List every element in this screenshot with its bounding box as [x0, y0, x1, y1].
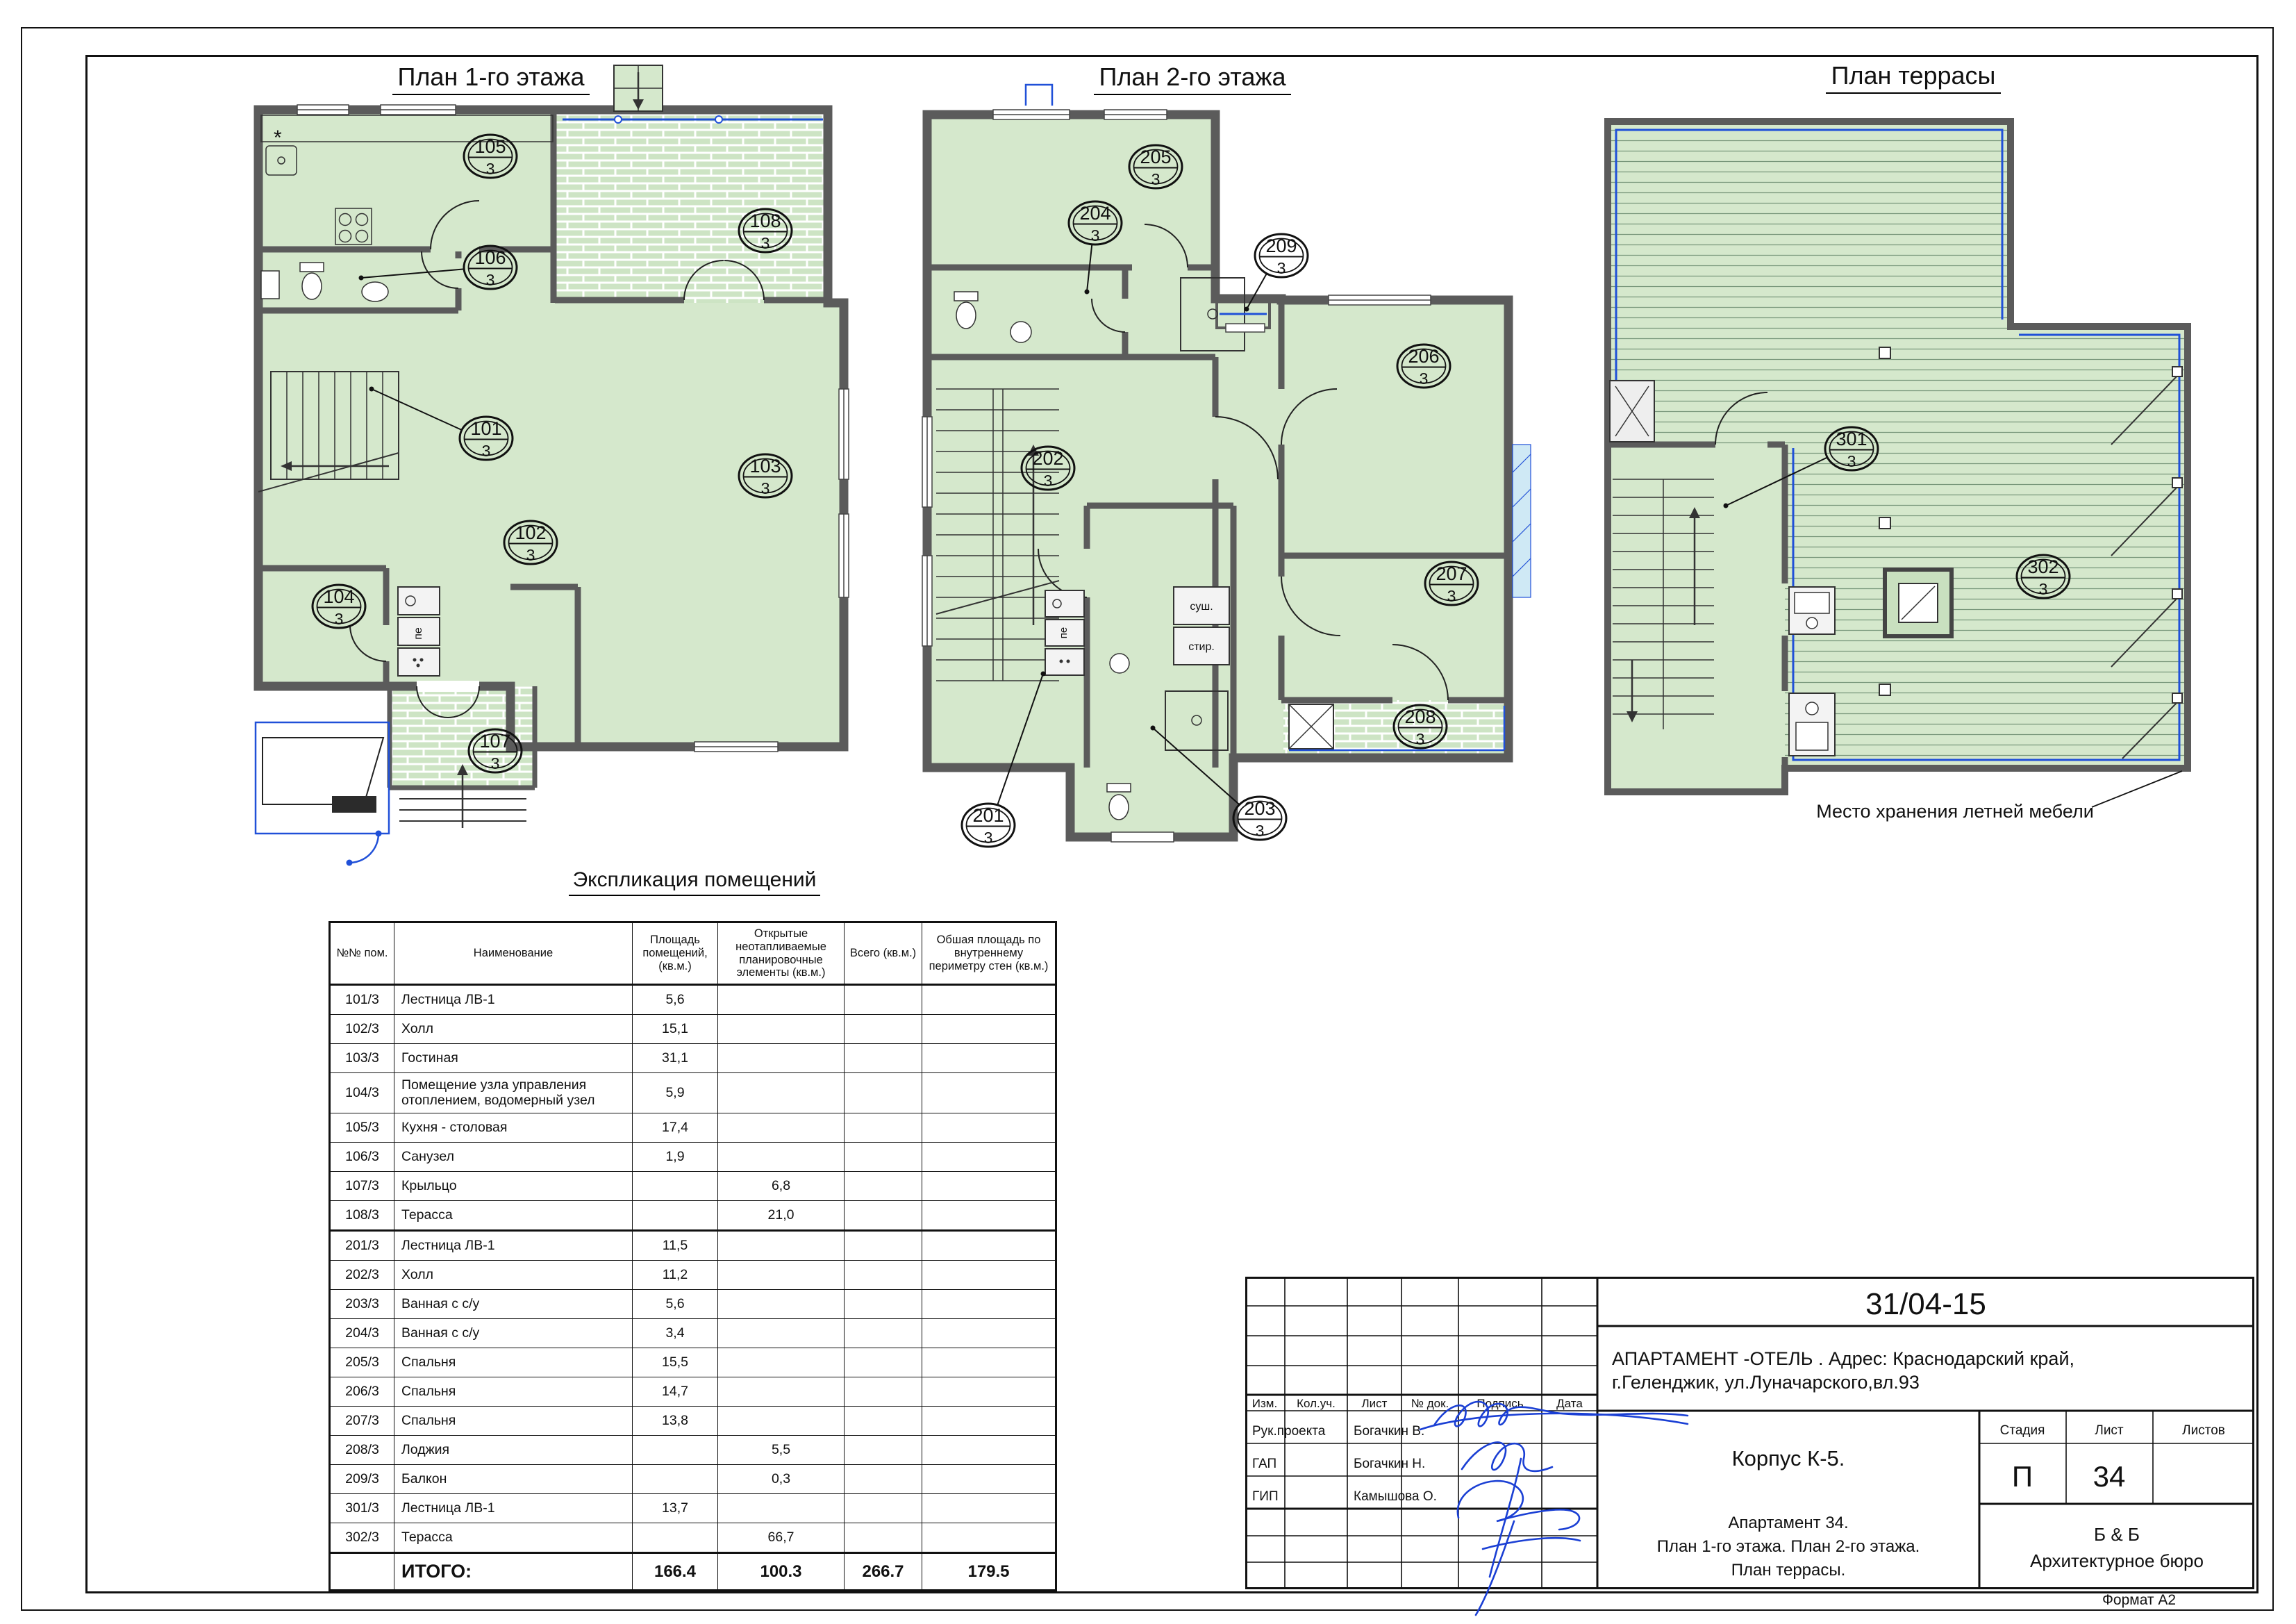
schedule-row: 106/3Санузел1,9 — [330, 1143, 1056, 1172]
room-number: 107 — [479, 731, 510, 752]
schedule-cell: 13,8 — [633, 1407, 718, 1436]
room-denominator: 3 — [1416, 730, 1425, 748]
schedule-cell: 208/3 — [330, 1436, 394, 1465]
schedule-cell: 15,1 — [633, 1015, 718, 1044]
room-denominator: 3 — [482, 442, 491, 460]
schedule-cell: Холл — [394, 1015, 633, 1044]
format-note: Формат А2 — [2049, 1592, 2229, 1609]
schedule-cell — [718, 1044, 845, 1073]
schedule-cell — [845, 1143, 922, 1172]
sheet-number: 34 — [2093, 1460, 2126, 1493]
schedule-cell: Спальня — [394, 1348, 633, 1377]
schedule-cell: Лоджия — [394, 1436, 633, 1465]
schedule-cell — [922, 1319, 1056, 1348]
col-koluch: Кол.уч. — [1297, 1397, 1336, 1410]
leader-dot — [1151, 726, 1156, 731]
schedule-cell — [845, 1261, 922, 1290]
room-denominator: 3 — [335, 610, 344, 628]
schedule-cell: 106/3 — [330, 1143, 394, 1172]
schedule-cell — [845, 1113, 922, 1143]
room-number: 104 — [323, 586, 354, 607]
room-denominator: 3 — [491, 754, 500, 772]
plan1-floor-drawing: пе * — [236, 56, 875, 875]
schedule-cell: 103/3 — [330, 1044, 394, 1073]
schedule-cell — [718, 1261, 845, 1290]
room-denominator: 3 — [761, 234, 770, 252]
schedule-cell: 202/3 — [330, 1261, 394, 1290]
schedule-cell: 207/3 — [330, 1407, 394, 1436]
schedule-cell — [633, 1201, 718, 1231]
leader-dot — [1245, 307, 1249, 312]
role-2: ГИП — [1252, 1489, 1279, 1504]
firm-line1: Б & Б — [2094, 1524, 2140, 1545]
room-number: 207 — [1436, 563, 1467, 584]
room-denominator: 3 — [486, 160, 495, 178]
leader-dot — [369, 387, 374, 392]
leader-dot — [1041, 672, 1046, 677]
schedule-cell: Ванная с с/у — [394, 1290, 633, 1319]
col-izm: Изм. — [1252, 1397, 1277, 1410]
signature-1-swoosh — [1420, 1414, 1688, 1430]
plan2-roof-vent — [1026, 85, 1052, 106]
schedule-cell — [633, 1523, 718, 1553]
schedule-cell: 0,3 — [718, 1465, 845, 1494]
schedule-cell: 102/3 — [330, 1015, 394, 1044]
schedule-cell — [845, 985, 922, 1015]
role-0: Рук.проекта — [1252, 1424, 1326, 1439]
schedule-row: 108/3Терасса21,0 — [330, 1201, 1056, 1231]
schedule-row: 101/3Лестница ЛВ-15,6 — [330, 985, 1056, 1015]
schedule-cell: 6,8 — [718, 1172, 845, 1201]
schedule-cell: 3,4 — [633, 1319, 718, 1348]
room-denominator: 3 — [1151, 170, 1161, 188]
room-number: 302 — [2027, 556, 2058, 577]
schedule-cell — [718, 1348, 845, 1377]
schedule-cell — [922, 1290, 1056, 1319]
schedule-row: 204/3Ванная с с/у3,4 — [330, 1319, 1056, 1348]
schedule-cell — [845, 1319, 922, 1348]
title-block: 31/04-15 АПАРТАМЕНТ -ОТЕЛЬ . Адрес: Крас… — [1245, 1277, 2254, 1589]
room-number: 203 — [1244, 798, 1275, 819]
plan3-skylight — [1885, 570, 1952, 636]
room-number: 106 — [474, 247, 506, 268]
room-number: 209 — [1265, 235, 1297, 256]
washer-label: стир. — [1188, 641, 1215, 653]
schedule-row: 302/3Терасса66,7 — [330, 1523, 1056, 1553]
schedule-cell — [922, 1377, 1056, 1407]
signature-3 — [1458, 1481, 1579, 1530]
signature-2-tail — [1490, 1459, 1521, 1577]
schedule-cell: 21,0 — [718, 1201, 845, 1231]
schedule-cell: Ванная с с/у — [394, 1319, 633, 1348]
project-line1: АПАРТАМЕНТ -ОТЕЛЬ . Адрес: Краснодарский… — [1612, 1348, 2074, 1369]
sheet-title-1: Апартамент 34. — [1728, 1514, 1848, 1532]
schedule-cell: 1,9 — [633, 1143, 718, 1172]
schedule-cell: 209/3 — [330, 1465, 394, 1494]
schedule-cell: Гостиная — [394, 1044, 633, 1073]
schedule-cell: Лестница ЛВ-1 — [394, 1231, 633, 1261]
schedule-row: 301/3Лестница ЛВ-113,7 — [330, 1494, 1056, 1523]
schedule-cell — [845, 1201, 922, 1231]
schedule-row: 206/3Спальня14,7 — [330, 1377, 1056, 1407]
col-total: Всего (кв.м.) — [845, 922, 922, 985]
schedule-cell — [845, 1073, 922, 1113]
schedule-cell — [845, 1172, 922, 1201]
schedule-cell — [922, 1172, 1056, 1201]
schedule-cell: 204/3 — [330, 1319, 394, 1348]
schedule-cell: 301/3 — [330, 1494, 394, 1523]
kitchen-asterisk: * — [274, 126, 282, 149]
schedule-cell — [718, 1290, 845, 1319]
plan2-utility-shaft: пе — [1045, 590, 1084, 675]
schedule-cell: 11,2 — [633, 1261, 718, 1290]
schedule-cell: Крыльцо — [394, 1172, 633, 1201]
schedule-cell: 104/3 — [330, 1073, 394, 1113]
schedule-cell — [718, 1143, 845, 1172]
room-denominator: 3 — [1044, 472, 1053, 490]
schedule-row: 201/3Лестница ЛВ-111,5 — [330, 1231, 1056, 1261]
schedule-cell — [718, 1231, 845, 1261]
schedule-cell — [718, 1073, 845, 1113]
schedule-cell — [922, 1348, 1056, 1377]
sheet-title-3: План террасы. — [1731, 1561, 1846, 1580]
role-0-name: Богачкин В. — [1354, 1424, 1424, 1439]
schedule-cell: 13,7 — [633, 1494, 718, 1523]
schedule-row: 104/3Помещение узла управления отопление… — [330, 1073, 1056, 1113]
plan3-deck — [1608, 122, 2188, 792]
room-denominator: 3 — [526, 546, 535, 564]
schedule-cell — [718, 1113, 845, 1143]
room-denominator: 3 — [1420, 370, 1429, 388]
room-number: 206 — [1408, 346, 1439, 367]
room-number: 201 — [972, 805, 1004, 826]
schedule-row: 203/3Ванная с с/у5,6 — [330, 1290, 1056, 1319]
leader-dot — [1085, 290, 1090, 295]
room-number: 208 — [1404, 706, 1436, 727]
total-area: 166.4 — [633, 1553, 718, 1591]
schedule-cell: Балкон — [394, 1465, 633, 1494]
schedule-cell: 11,5 — [633, 1231, 718, 1261]
doc-number: 31/04-15 — [1865, 1287, 1986, 1321]
total-open: 100.3 — [718, 1553, 845, 1591]
plan3-vent-box — [1610, 381, 1654, 442]
schedule-cell — [922, 1113, 1056, 1143]
schedule-cell — [922, 1143, 1056, 1172]
schedule-cell — [845, 1465, 922, 1494]
room-denominator: 3 — [1277, 259, 1286, 277]
schedule-cell: Помещение узла управления отоплением, во… — [394, 1073, 633, 1113]
plan3-title: План террасы — [1788, 61, 2038, 94]
schedule-cell — [718, 1407, 845, 1436]
schedule-cell — [922, 1494, 1056, 1523]
firm-line2: Архитектурное бюро — [2030, 1550, 2204, 1571]
room-denominator: 3 — [1847, 452, 1856, 470]
schedule-row: 208/3Лоджия5,5 — [330, 1436, 1056, 1465]
schedule-row: 105/3Кухня - столовая17,4 — [330, 1113, 1056, 1143]
room-number: 205 — [1140, 147, 1171, 167]
schedule-cell — [718, 1015, 845, 1044]
schedule-cell — [845, 1436, 922, 1465]
note-text: Место хранения летней мебели — [1816, 801, 2094, 822]
schedule-cell: Спальня — [394, 1377, 633, 1407]
room-denominator: 3 — [761, 479, 770, 497]
schedule-cell: Холл — [394, 1261, 633, 1290]
room-denominator: 3 — [1447, 587, 1456, 605]
plan3-note: Место хранения летней мебели — [1816, 771, 2182, 822]
schedule-cell — [718, 1377, 845, 1407]
leader-dot — [359, 276, 364, 281]
listov-label: Листов — [2182, 1423, 2225, 1438]
schedule-cell: 31,1 — [633, 1044, 718, 1073]
schedule-cell: 101/3 — [330, 985, 394, 1015]
schedule-cell — [718, 985, 845, 1015]
stair-room-301 — [1608, 445, 1785, 792]
schedule-cell: 15,5 — [633, 1348, 718, 1377]
schedule-cell — [922, 1201, 1056, 1231]
drawing-sheet: План 1-го этажа План 2-го этажа План тер… — [0, 0, 2296, 1624]
schedule-row: 209/3Балкон0,3 — [330, 1465, 1056, 1494]
plan1-utility-shaft: пе — [398, 587, 440, 676]
col-name: Наименование — [394, 922, 633, 985]
room-denominator: 3 — [486, 271, 495, 289]
schedule-cell: Лестница ЛВ-1 — [394, 1494, 633, 1523]
col-inner-perimeter: Обшая площадь по внутреннему периметру с… — [922, 922, 1056, 985]
col-area: Площадь помещений, (кв.м.) — [633, 922, 718, 985]
schedule-cell — [845, 1015, 922, 1044]
schedule-cell — [845, 1523, 922, 1553]
room-number: 108 — [749, 210, 781, 231]
schedule-cell: 17,4 — [633, 1113, 718, 1143]
schedule-cell — [845, 1290, 922, 1319]
room-denominator: 3 — [1256, 822, 1265, 840]
schedule-cell: 66,7 — [718, 1523, 845, 1553]
shaft-label: пе — [413, 627, 424, 640]
schedule-header-row: №№ пом. Наименование Площадь помещений, … — [330, 922, 1056, 985]
schedule-cell: 14,7 — [633, 1377, 718, 1407]
terrace-108-brick — [555, 110, 828, 303]
schedule-cell: Терасса — [394, 1201, 633, 1231]
schedule-cell — [922, 1465, 1056, 1494]
shaft-label: пе — [1058, 627, 1070, 638]
total-inner: 179.5 — [922, 1553, 1056, 1591]
schedule-row: 107/3Крыльцо6,8 — [330, 1172, 1056, 1201]
schedule-cell: 5,9 — [633, 1073, 718, 1113]
schedule-cell — [718, 1494, 845, 1523]
col-open-elements: Открытые неотапливаемые планировочные эл… — [718, 922, 845, 985]
schedule-cell: 206/3 — [330, 1377, 394, 1407]
room-number: 105 — [474, 136, 506, 157]
schedule-cell: Спальня — [394, 1407, 633, 1436]
plan1-chimney — [614, 65, 663, 111]
schedule-cell: 5,6 — [633, 985, 718, 1015]
room-number: 301 — [1836, 429, 1867, 449]
total-label: ИТОГО: — [394, 1553, 633, 1591]
stage-label: Стадия — [2000, 1423, 2045, 1438]
schedule-total-row: ИТОГО: 166.4 100.3 266.7 179.5 — [330, 1553, 1056, 1591]
schedule-cell: 105/3 — [330, 1113, 394, 1143]
room-schedule-table: №№ пом. Наименование Площадь помещений, … — [328, 921, 1057, 1591]
object-name: Корпус К-5. — [1732, 1446, 1845, 1470]
schedule-row: 102/3Холл15,1 — [330, 1015, 1056, 1044]
signatures — [1417, 1375, 1708, 1618]
schedule-cell — [633, 1436, 718, 1465]
schedule-cell: 201/3 — [330, 1231, 394, 1261]
schedule-cell — [633, 1172, 718, 1201]
role-1: ГАП — [1252, 1457, 1276, 1471]
room-number: 102 — [515, 522, 546, 543]
schedule-cell — [922, 1044, 1056, 1073]
schedule-cell — [922, 1407, 1056, 1436]
schedule-title: Экспликация помещений — [549, 868, 840, 896]
schedule-cell — [845, 1407, 922, 1436]
plan2-neighbor-strip — [1513, 445, 1531, 597]
list-label: Лист — [2095, 1423, 2124, 1438]
schedule-cell — [845, 1231, 922, 1261]
schedule-cell — [845, 1044, 922, 1073]
schedule-cell: 203/3 — [330, 1290, 394, 1319]
schedule-cell — [922, 1436, 1056, 1465]
room-denominator: 3 — [984, 829, 993, 847]
schedule-cell — [845, 1494, 922, 1523]
room-number: 202 — [1032, 448, 1063, 469]
room-number: 204 — [1079, 203, 1110, 224]
schedule-cell — [845, 1348, 922, 1377]
stage-header: Стадия Лист Листов — [2000, 1423, 2225, 1438]
schedule-cell: Терасса — [394, 1523, 633, 1553]
schedule-cell: Кухня - столовая — [394, 1113, 633, 1143]
schedule-cell: 205/3 — [330, 1348, 394, 1377]
schedule-cell: Санузел — [394, 1143, 633, 1172]
schedule-cell — [922, 1015, 1056, 1044]
schedule-cell: Лестница ЛВ-1 — [394, 985, 633, 1015]
plan2-floor-drawing: пе суш. стир. 20532043209320632023207320… — [917, 69, 1549, 896]
room-number: 101 — [470, 418, 501, 439]
schedule-cell: 302/3 — [330, 1523, 394, 1553]
schedule-cell — [718, 1319, 845, 1348]
dryer-label: суш. — [1190, 601, 1213, 613]
schedule-cell: 107/3 — [330, 1172, 394, 1201]
total-cell — [330, 1553, 394, 1591]
schedule-row: 103/3Гостиная31,1 — [330, 1044, 1056, 1073]
schedule-cell — [922, 1073, 1056, 1113]
room-denominator: 3 — [2039, 580, 2048, 598]
room-number: 103 — [749, 456, 781, 477]
schedule-cell — [922, 985, 1056, 1015]
schedule-cell — [922, 1231, 1056, 1261]
schedule-row: 207/3Спальня13,8 — [330, 1407, 1056, 1436]
col-number: №№ пом. — [330, 922, 394, 985]
total-sum: 266.7 — [845, 1553, 922, 1591]
leader-dot — [1724, 504, 1729, 508]
schedule-cell: 5,6 — [633, 1290, 718, 1319]
schedule-cell: 5,5 — [718, 1436, 845, 1465]
plan3-terrace-drawing: Место хранения летней мебели 30133023 — [1590, 97, 2278, 910]
signature-2 — [1462, 1443, 1552, 1471]
schedule-cell: 108/3 — [330, 1201, 394, 1231]
role-1-name: Богачкин Н. — [1354, 1457, 1425, 1471]
stage-value: П — [2012, 1460, 2033, 1493]
col-list: Лист — [1362, 1397, 1388, 1410]
schedule-cell — [922, 1523, 1056, 1553]
schedule-cell — [845, 1377, 922, 1407]
schedule-cell — [633, 1465, 718, 1494]
schedule-cell — [922, 1261, 1056, 1290]
schedule-row: 205/3Спальня15,5 — [330, 1348, 1056, 1377]
schedule-row: 202/3Холл11,2 — [330, 1261, 1056, 1290]
room-denominator: 3 — [1091, 226, 1100, 245]
